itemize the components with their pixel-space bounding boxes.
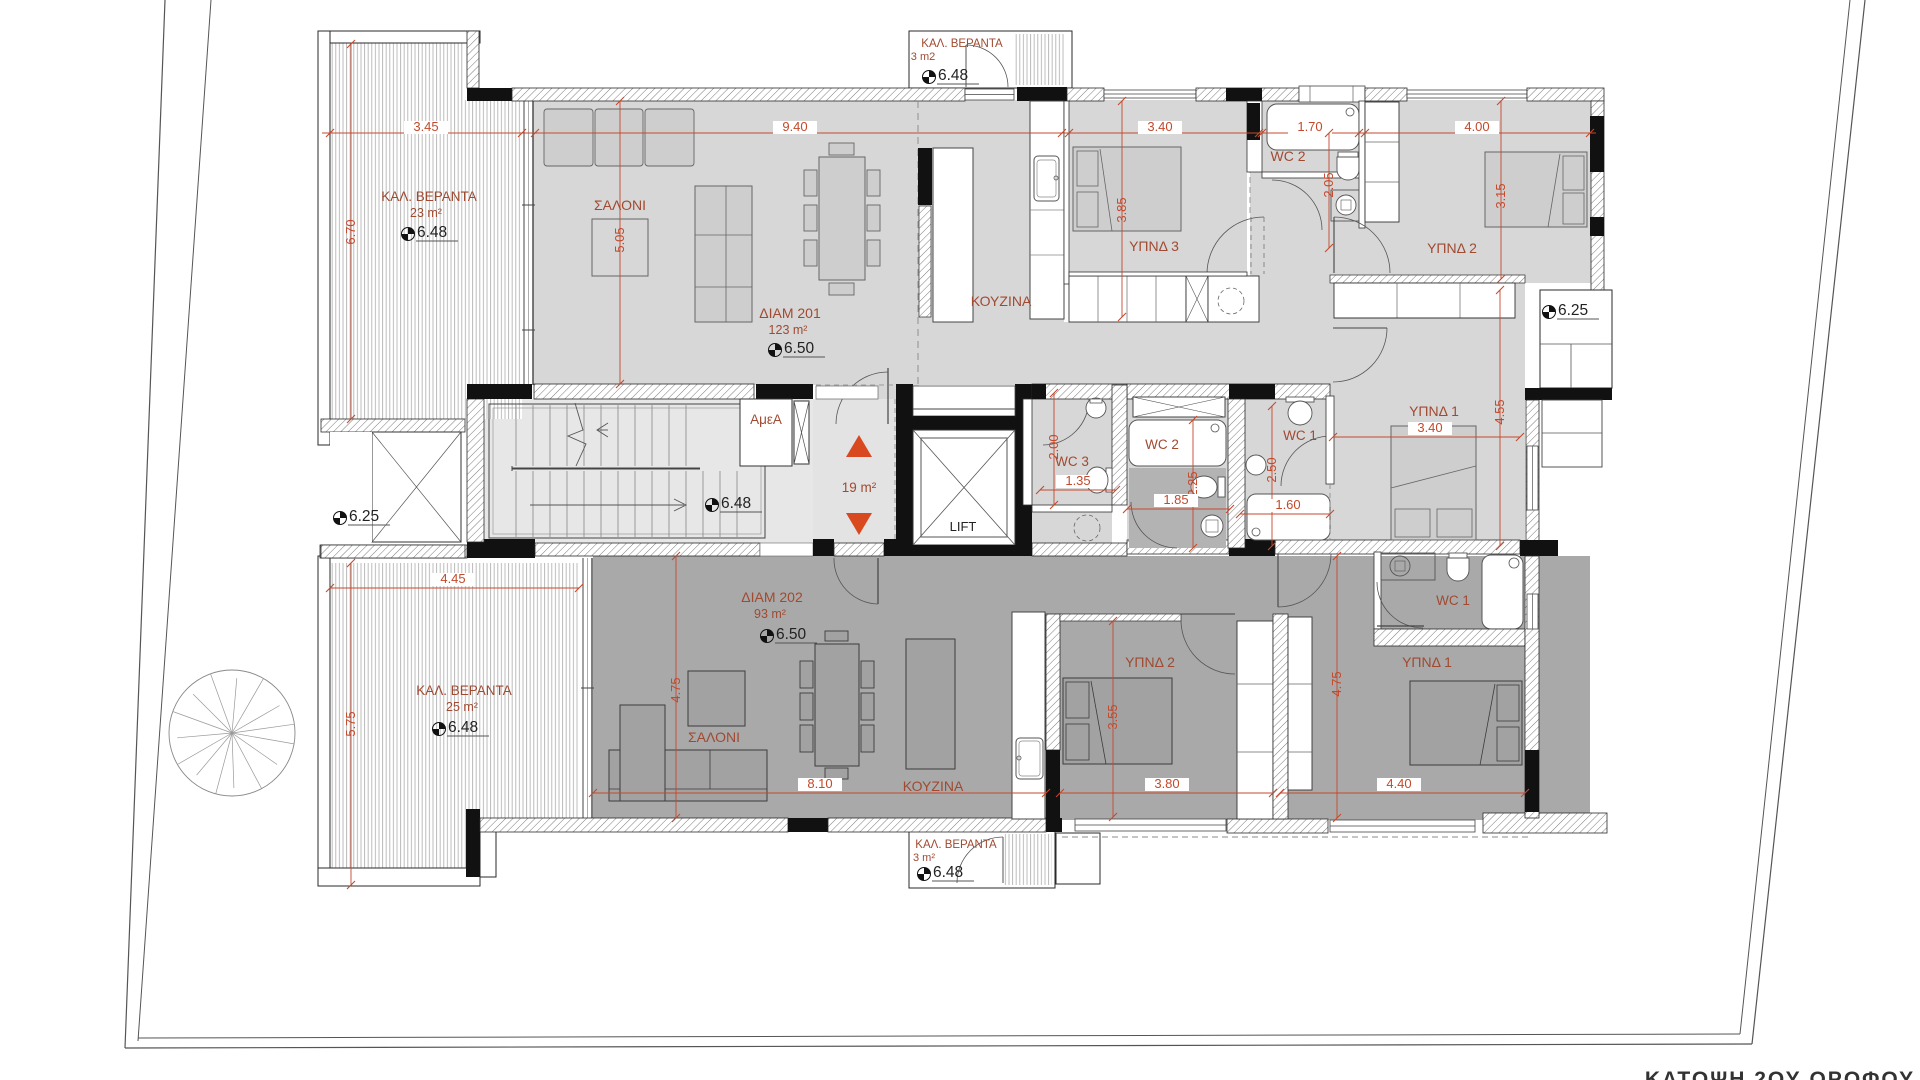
svg-text:6.50: 6.50 — [776, 626, 807, 643]
svg-text:ΚΑΛ. ΒΕΡΑΝΤΑ: ΚΑΛ. ΒΕΡΑΝΤΑ — [381, 189, 477, 204]
svg-text:2.05: 2.05 — [1321, 172, 1336, 197]
svg-text:3 m²: 3 m² — [913, 852, 935, 864]
svg-text:WC 1: WC 1 — [1436, 593, 1470, 608]
svg-text:ΑμεΑ: ΑμεΑ — [750, 412, 782, 427]
svg-text:ΚΟΥΖΙΝΑ: ΚΟΥΖΙΝΑ — [903, 778, 964, 794]
svg-text:ΥΠΝΔ 2: ΥΠΝΔ 2 — [1427, 240, 1477, 256]
svg-text:4.75: 4.75 — [668, 677, 683, 702]
svg-text:9.40: 9.40 — [782, 119, 807, 134]
svg-text:ΣΑΛΟΝΙ: ΣΑΛΟΝΙ — [594, 197, 646, 213]
svg-text:6.48: 6.48 — [933, 864, 963, 881]
svg-text:LIFT: LIFT — [950, 519, 977, 534]
svg-text:3.40: 3.40 — [1417, 420, 1442, 435]
svg-text:3.55: 3.55 — [1105, 704, 1120, 729]
svg-text:19 m²: 19 m² — [842, 480, 877, 495]
svg-text:6.48: 6.48 — [448, 719, 478, 736]
svg-text:6.48: 6.48 — [417, 224, 447, 241]
svg-text:ΚΑΛ. ΒΕΡΑΝΤΑ: ΚΑΛ. ΒΕΡΑΝΤΑ — [921, 38, 1003, 50]
svg-text:1.85: 1.85 — [1163, 492, 1188, 507]
svg-text:1.35: 1.35 — [1065, 473, 1090, 488]
svg-text:ΥΠΝΔ 1: ΥΠΝΔ 1 — [1409, 403, 1459, 419]
svg-text:ΚΑΛ. ΒΕΡΑΝΤΑ: ΚΑΛ. ΒΕΡΑΝΤΑ — [915, 839, 997, 851]
svg-text:4.40: 4.40 — [1386, 776, 1411, 791]
svg-text:WC 2: WC 2 — [1271, 148, 1306, 164]
svg-text:ΚΑΤΟΨΗ 2ΟΥ ΟΡΟΦΟΥ: ΚΑΤΟΨΗ 2ΟΥ ΟΡΟΦΟΥ — [1645, 1068, 1915, 1080]
svg-text:1.60: 1.60 — [1275, 497, 1300, 512]
svg-text:WC 2: WC 2 — [1145, 437, 1179, 452]
svg-text:3.15: 3.15 — [1493, 183, 1508, 208]
svg-text:5.75: 5.75 — [343, 711, 358, 736]
svg-text:3 m2: 3 m2 — [911, 51, 935, 63]
svg-text:3.85: 3.85 — [1114, 197, 1129, 222]
svg-text:2.50: 2.50 — [1264, 457, 1279, 482]
svg-text:6.25: 6.25 — [349, 508, 379, 525]
svg-text:6.50: 6.50 — [784, 340, 815, 357]
svg-text:ΚΟΥΖΙΝΑ: ΚΟΥΖΙΝΑ — [971, 293, 1032, 309]
svg-text:4.75: 4.75 — [1329, 671, 1344, 696]
svg-text:6.48: 6.48 — [938, 67, 968, 84]
svg-text:3.80: 3.80 — [1154, 776, 1179, 791]
svg-text:123 m²: 123 m² — [769, 323, 808, 337]
svg-text:6.48: 6.48 — [721, 495, 751, 512]
svg-text:4.45: 4.45 — [440, 571, 465, 586]
svg-text:1.70: 1.70 — [1297, 119, 1322, 134]
svg-text:ΥΠΝΔ 2: ΥΠΝΔ 2 — [1125, 654, 1175, 670]
svg-text:ΔΙΑΜ 202: ΔΙΑΜ 202 — [741, 589, 803, 605]
svg-text:ΥΠΝΔ 3: ΥΠΝΔ 3 — [1129, 238, 1179, 254]
svg-text:WC 3: WC 3 — [1055, 454, 1089, 469]
svg-text:WC 1: WC 1 — [1283, 428, 1317, 443]
svg-text:ΣΑΛΟΝΙ: ΣΑΛΟΝΙ — [688, 729, 740, 745]
svg-text:3.40: 3.40 — [1147, 119, 1172, 134]
svg-text:93 m²: 93 m² — [754, 607, 786, 621]
svg-text:ΥΠΝΔ 1: ΥΠΝΔ 1 — [1402, 654, 1452, 670]
svg-text:8.10: 8.10 — [807, 776, 832, 791]
svg-text:ΔΙΑΜ 201: ΔΙΑΜ 201 — [759, 305, 821, 321]
svg-text:4.00: 4.00 — [1464, 119, 1489, 134]
svg-text:6.70: 6.70 — [343, 219, 358, 244]
svg-text:23 m²: 23 m² — [410, 206, 442, 220]
svg-text:5.05: 5.05 — [612, 227, 627, 252]
svg-text:25 m²: 25 m² — [446, 700, 478, 714]
svg-text:3.45: 3.45 — [413, 119, 438, 134]
svg-text:4.55: 4.55 — [1492, 399, 1507, 424]
svg-text:ΚΑΛ. ΒΕΡΑΝΤΑ: ΚΑΛ. ΒΕΡΑΝΤΑ — [416, 683, 512, 698]
svg-text:6.25: 6.25 — [1558, 302, 1588, 319]
